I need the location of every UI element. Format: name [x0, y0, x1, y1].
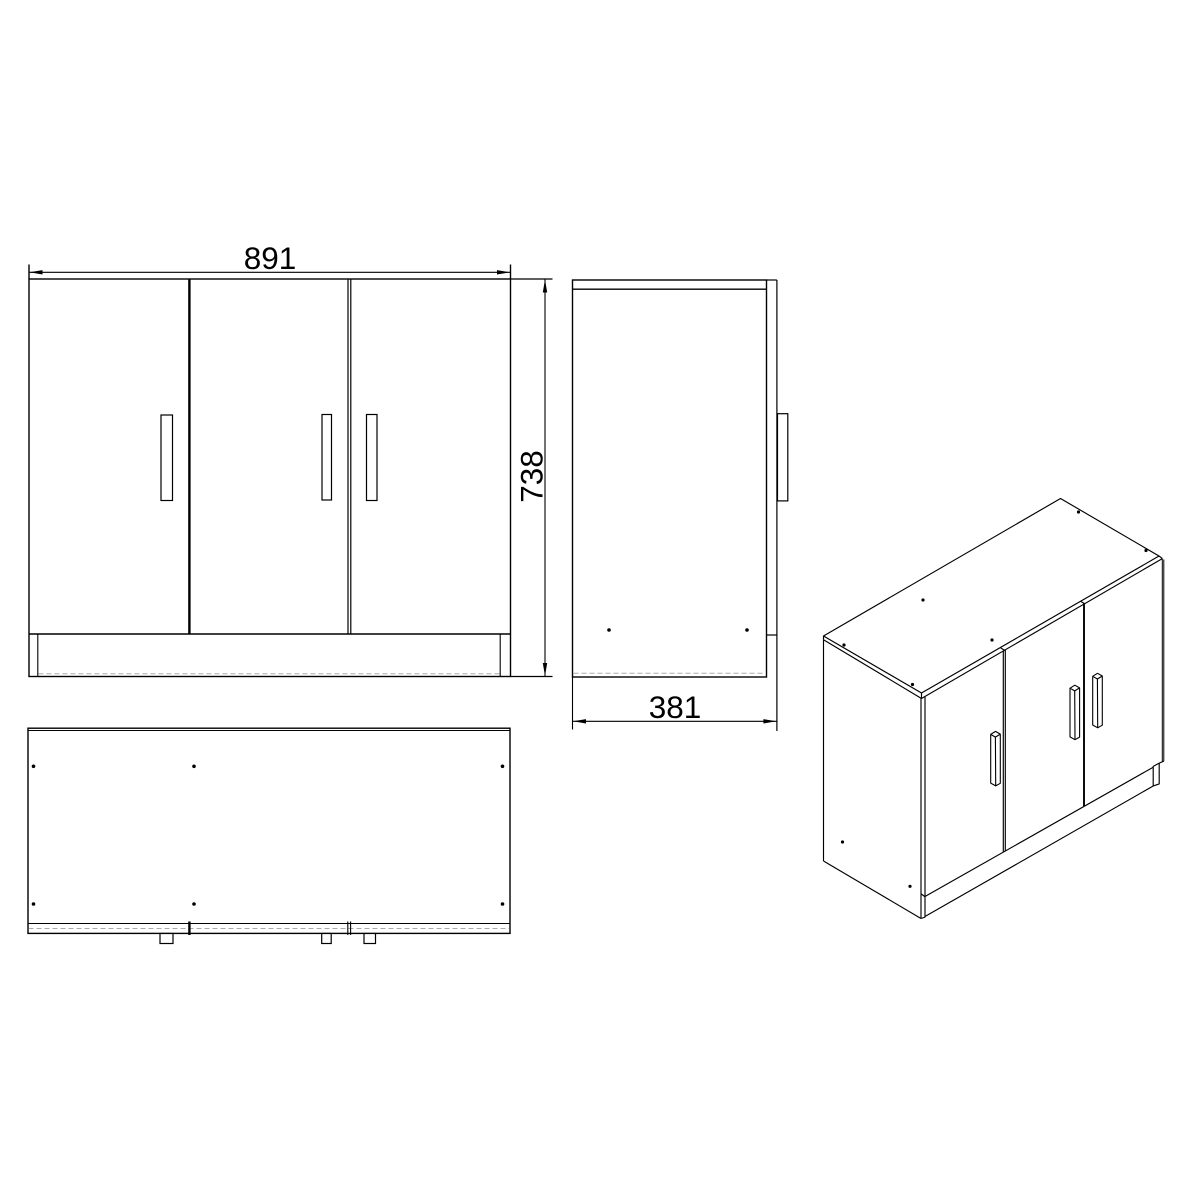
- svg-text:891: 891: [244, 240, 297, 276]
- svg-text:381: 381: [649, 689, 702, 725]
- svg-text:738: 738: [514, 450, 550, 503]
